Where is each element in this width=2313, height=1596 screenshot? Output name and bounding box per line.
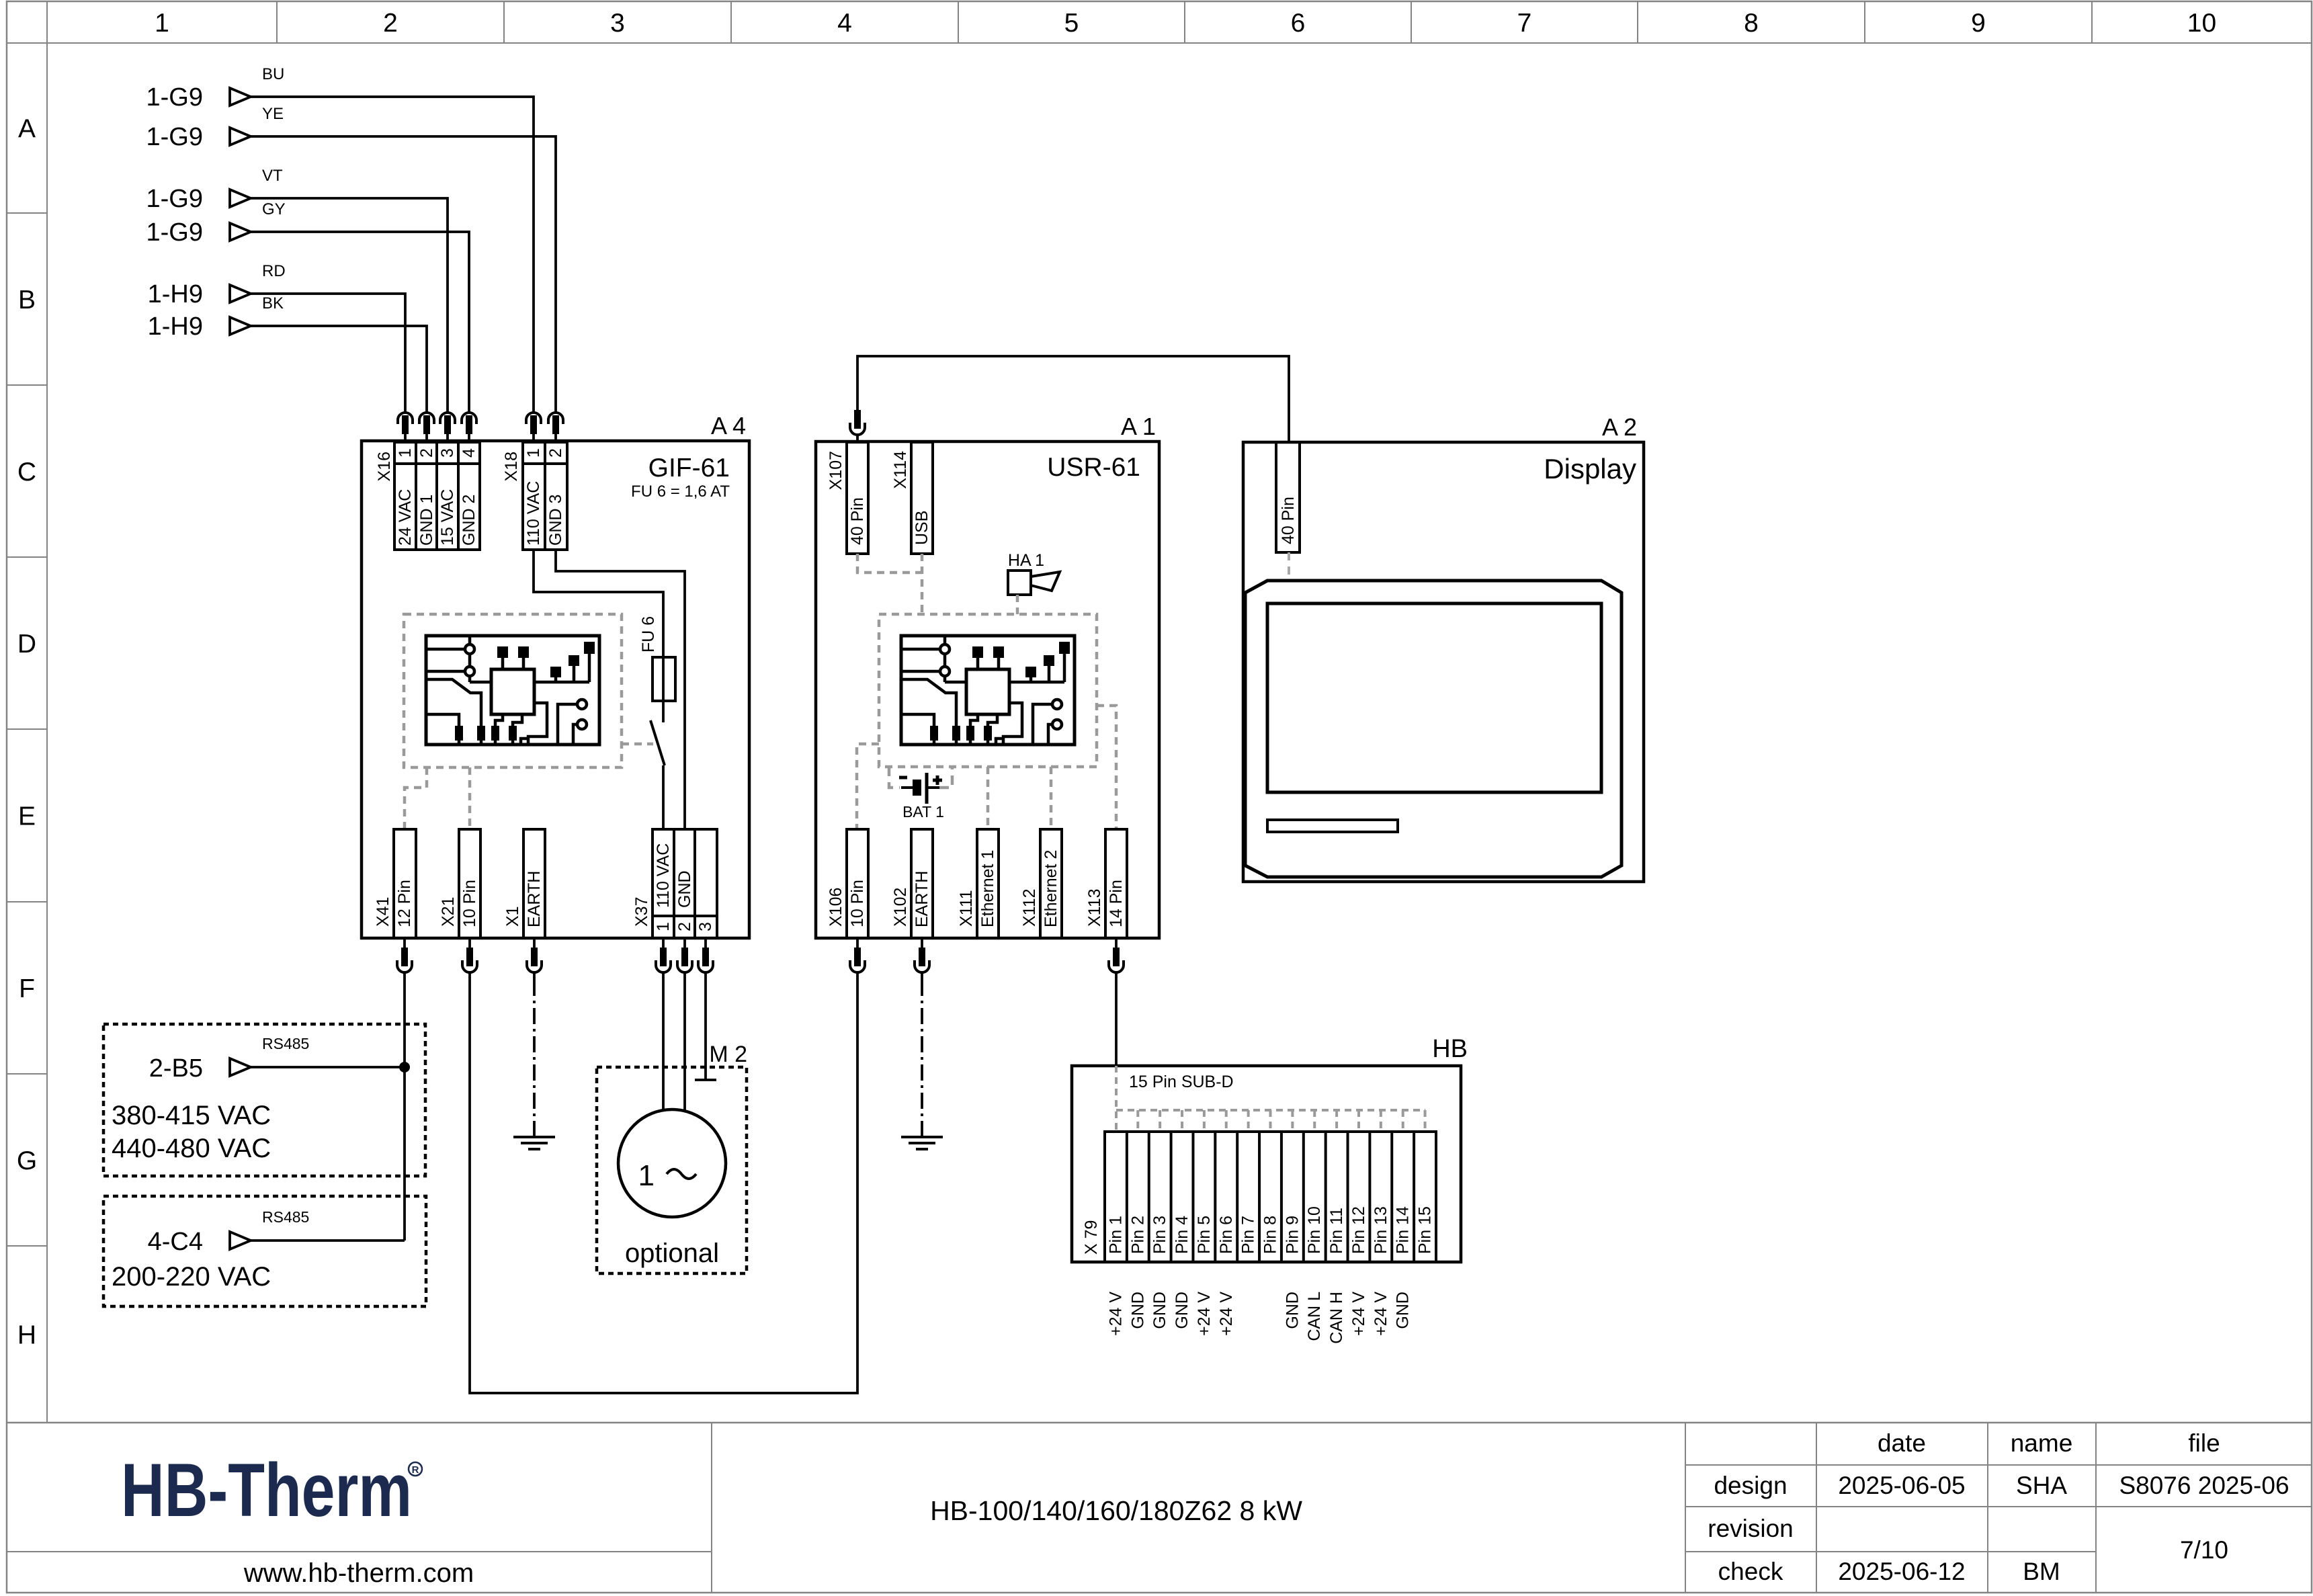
svg-text:X1: X1 [503,906,522,927]
svg-text:1-H9: 1-H9 [148,280,203,308]
svg-text:CAN H: CAN H [1327,1292,1346,1344]
svg-text:Display: Display [1544,453,1636,485]
svg-text:1: 1 [638,1159,655,1192]
svg-text:1-H9: 1-H9 [148,312,203,341]
svg-text:+24 V: +24 V [1106,1292,1125,1336]
svg-text:X41: X41 [374,897,392,927]
svg-text:2025-06-05: 2025-06-05 [1838,1472,1965,1499]
svg-text:GND: GND [1173,1292,1191,1329]
svg-text:2: 2 [417,448,436,458]
svg-text:5: 5 [1064,9,1079,38]
svg-text:+24 V: +24 V [1195,1292,1214,1336]
svg-text:40 Pin: 40 Pin [1279,497,1298,544]
svg-text:110 VAC: 110 VAC [654,843,673,908]
svg-text:Pin 10: Pin 10 [1305,1206,1324,1254]
svg-text:3: 3 [696,922,715,931]
svg-text:USR-61: USR-61 [1047,453,1140,482]
svg-text:2025-06-12: 2025-06-12 [1838,1558,1965,1585]
svg-text:GND: GND [675,870,694,908]
svg-text:Pin 14: Pin 14 [1394,1206,1413,1254]
svg-text:S8076 2025-06: S8076 2025-06 [2119,1472,2289,1499]
svg-text:7/10: 7/10 [2180,1536,2228,1564]
svg-text:Pin 3: Pin 3 [1150,1216,1169,1254]
svg-text:380-415 VAC: 380-415 VAC [112,1101,271,1130]
svg-text:GND 2: GND 2 [460,495,478,546]
svg-text:C: C [17,458,36,487]
svg-text:HA 1: HA 1 [1008,551,1044,570]
svg-text:check: check [1718,1558,1783,1585]
svg-text:7: 7 [1517,9,1532,38]
svg-text:Ethernet 2: Ethernet 2 [1042,850,1060,927]
svg-text:A: A [18,115,36,144]
svg-text:BK: BK [262,294,284,312]
svg-text:X18: X18 [502,452,521,481]
svg-text:X107: X107 [827,451,845,490]
svg-text:2: 2 [546,448,565,458]
svg-text:Pin 7: Pin 7 [1239,1216,1258,1254]
svg-text:4: 4 [460,448,478,458]
svg-text:4-C4: 4-C4 [148,1228,203,1256]
svg-text:10 Pin: 10 Pin [460,880,479,927]
svg-text:FU 6 = 1,6 AT: FU 6 = 1,6 AT [631,482,730,501]
svg-text:Pin 8: Pin 8 [1261,1216,1280,1254]
svg-text:1: 1 [654,922,673,931]
svg-text:revision: revision [1708,1515,1794,1542]
svg-text:HB-100/140/160/180Z62 8 kW: HB-100/140/160/180Z62 8 kW [930,1495,1302,1526]
svg-text:optional: optional [625,1238,719,1268]
svg-text:3: 3 [438,448,457,458]
svg-text:RD: RD [262,262,286,280]
svg-text:EARTH: EARTH [913,871,931,927]
svg-text:2: 2 [675,922,694,931]
svg-text:X113: X113 [1085,888,1104,927]
svg-text:1: 1 [396,448,415,458]
svg-text:10: 10 [2187,9,2216,38]
svg-text:A 4: A 4 [711,412,746,439]
svg-text:M 2: M 2 [709,1042,747,1067]
svg-text:Pin 9: Pin 9 [1283,1216,1302,1254]
svg-text:GND: GND [1128,1292,1147,1329]
svg-text:file: file [2188,1429,2220,1457]
svg-text:Pin 12: Pin 12 [1349,1206,1368,1254]
svg-text:A 1: A 1 [1121,413,1156,440]
svg-text:3: 3 [610,9,625,38]
svg-text:14 Pin: 14 Pin [1107,880,1126,927]
svg-text:1-G9: 1-G9 [146,83,203,112]
svg-text:4: 4 [837,9,852,38]
svg-text:CAN L: CAN L [1305,1292,1324,1341]
svg-text:+24 V: +24 V [1217,1292,1236,1336]
svg-text:GND: GND [1394,1292,1413,1329]
svg-text:15 Pin SUB-D: 15 Pin SUB-D [1129,1073,1234,1091]
svg-text:2: 2 [383,9,398,38]
svg-text:HB-Therm: HB-Therm [121,1448,412,1532]
svg-text:+24 V: +24 V [1349,1292,1368,1336]
svg-text:6: 6 [1291,9,1306,38]
svg-text:D: D [17,630,36,659]
svg-text:Ethernet 1: Ethernet 1 [978,850,997,927]
svg-text:X102: X102 [891,888,910,927]
svg-text:Pin 2: Pin 2 [1128,1216,1147,1254]
svg-text:B: B [18,286,36,314]
svg-text:HB: HB [1432,1035,1468,1063]
svg-text:R: R [412,1464,419,1476]
svg-text:GND: GND [1283,1292,1302,1329]
svg-text:name: name [2011,1429,2073,1457]
svg-text:H: H [17,1321,36,1350]
svg-text:RS485: RS485 [262,1208,309,1226]
svg-text:F: F [19,974,35,1003]
svg-text:USB: USB [913,511,931,545]
svg-text:1: 1 [524,448,543,458]
svg-text:Pin 13: Pin 13 [1372,1206,1390,1254]
svg-text:X21: X21 [439,897,458,927]
svg-text:YE: YE [262,105,284,123]
svg-text:1-G9: 1-G9 [146,218,203,247]
svg-text:12 Pin: 12 Pin [395,880,414,927]
svg-text:X16: X16 [375,452,394,481]
svg-text:440-480 VAC: 440-480 VAC [112,1134,271,1163]
svg-text:Pin 15: Pin 15 [1416,1206,1435,1254]
svg-text:G: G [17,1146,37,1175]
svg-text:9: 9 [1971,9,1986,38]
svg-text:VT: VT [262,167,283,185]
svg-text:Pin 5: Pin 5 [1195,1216,1214,1254]
svg-text:FU 6: FU 6 [639,616,658,653]
svg-text:Pin 6: Pin 6 [1217,1216,1236,1254]
svg-text:GIF-61: GIF-61 [648,454,730,482]
svg-text:date: date [1878,1429,1926,1457]
svg-text:10 Pin: 10 Pin [848,880,867,927]
svg-text:X111: X111 [957,890,976,927]
svg-text:1-G9: 1-G9 [146,123,203,151]
svg-text:A 2: A 2 [1602,413,1637,441]
svg-text:+24 V: +24 V [1372,1292,1390,1336]
svg-text:design: design [1714,1472,1787,1499]
svg-text:8: 8 [1744,9,1759,38]
svg-text:GND: GND [1150,1292,1169,1329]
svg-text:X112: X112 [1020,888,1039,927]
svg-text:www.hb-therm.com: www.hb-therm.com [243,1558,474,1588]
svg-text:200-220 VAC: 200-220 VAC [112,1262,271,1292]
svg-text:X 79: X 79 [1082,1220,1101,1255]
svg-text:BM: BM [2023,1558,2060,1585]
svg-text:EARTH: EARTH [525,871,544,927]
svg-text:2-B5: 2-B5 [149,1054,203,1083]
svg-text:GND 1: GND 1 [417,495,436,546]
svg-text:BU: BU [262,65,284,83]
svg-text:GY: GY [262,200,286,218]
svg-text:Pin 4: Pin 4 [1173,1216,1191,1254]
svg-text:110 VAC: 110 VAC [524,481,543,546]
svg-text:15 VAC: 15 VAC [438,489,457,546]
svg-text:1: 1 [155,9,169,38]
svg-text:SHA: SHA [2016,1472,2067,1499]
svg-text:E: E [18,802,36,831]
svg-text:GND 3: GND 3 [546,495,565,546]
svg-text:Pin 11: Pin 11 [1327,1208,1346,1254]
svg-text:40 Pin: 40 Pin [848,497,867,545]
svg-text:X37: X37 [632,897,651,927]
svg-text:X106: X106 [827,888,845,927]
svg-text:BAT 1: BAT 1 [902,803,944,821]
svg-text:Pin 1: Pin 1 [1106,1216,1125,1254]
svg-text:1-G9: 1-G9 [146,185,203,213]
svg-text:RS485: RS485 [262,1035,309,1052]
svg-text:X114: X114 [891,451,910,489]
svg-text:24 VAC: 24 VAC [396,489,415,546]
